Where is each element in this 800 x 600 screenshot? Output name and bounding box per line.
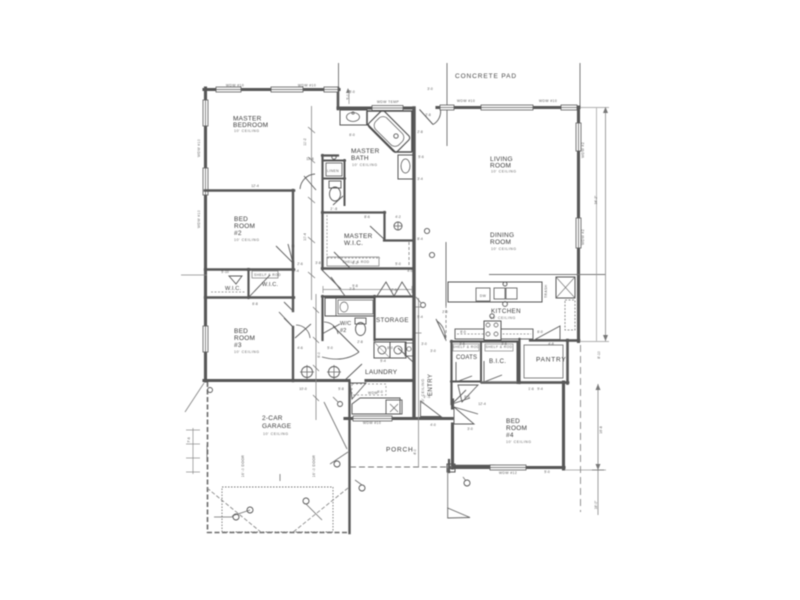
svg-text:WDW TEMP: WDW TEMP: [377, 100, 400, 104]
svg-text:ROOM: ROOM: [506, 425, 527, 432]
svg-text:#3: #3: [234, 342, 242, 349]
svg-text:SHELF & ROD: SHELF & ROD: [485, 345, 512, 349]
svg-text:#4: #4: [506, 432, 514, 439]
svg-text:2-CAR: 2-CAR: [262, 415, 283, 422]
svg-text:WDW #2: WDW #2: [581, 229, 585, 245]
svg-text:MASTER: MASTER: [344, 233, 373, 240]
svg-text:10' CEILING: 10' CEILING: [263, 432, 289, 436]
svg-text:16'-0 DOOR: 16'-0 DOOR: [241, 455, 245, 478]
svg-text:4'-6: 4'-6: [297, 346, 303, 350]
svg-text:8'-0: 8'-0: [460, 330, 466, 334]
svg-text:3'-0: 3'-0: [421, 342, 427, 346]
svg-text:11'-2: 11'-2: [303, 138, 307, 145]
svg-text:8'-0: 8'-0: [464, 395, 470, 399]
svg-text:10' CEILING: 10' CEILING: [491, 170, 517, 174]
svg-text:5'-0: 5'-0: [327, 346, 333, 350]
svg-text:6'-0: 6'-0: [349, 133, 355, 137]
svg-text:GARAGE: GARAGE: [262, 423, 292, 430]
svg-text:2'-8: 2'-8: [330, 207, 337, 211]
svg-text:TRASH: TRASH: [544, 284, 548, 298]
svg-text:10' CEILING: 10' CEILING: [506, 440, 532, 444]
svg-text:5'-6: 5'-6: [418, 155, 424, 159]
svg-text:WDW #12: WDW #12: [499, 471, 517, 475]
svg-text:12'-4: 12'-4: [251, 184, 259, 188]
svg-text:4'-2: 4'-2: [395, 215, 401, 219]
svg-text:BATH: BATH: [351, 155, 369, 162]
svg-text:ROOM: ROOM: [490, 163, 511, 170]
svg-text:WDW #10: WDW #10: [363, 421, 381, 425]
svg-text:WDW #10: WDW #10: [226, 84, 244, 88]
svg-text:COATS: COATS: [456, 355, 477, 361]
svg-text:6'-0: 6'-0: [537, 330, 543, 334]
svg-text:5'-4: 5'-4: [417, 315, 423, 319]
svg-text:6'-8: 6'-8: [252, 302, 258, 306]
svg-text:5'-8: 5'-8: [338, 387, 344, 391]
svg-text:8'-10: 8'-10: [597, 351, 601, 359]
svg-text:WDW #10: WDW #10: [539, 99, 557, 103]
svg-text:3'-6: 3'-6: [459, 342, 465, 346]
svg-text:10' CEILING: 10' CEILING: [234, 238, 260, 242]
svg-text:SHELF & ROD: SHELF & ROD: [452, 345, 479, 349]
svg-text:W.I.C.: W.I.C.: [344, 240, 363, 247]
svg-text:5'-0: 5'-0: [544, 470, 550, 474]
svg-text:2'-8: 2'-8: [349, 287, 355, 291]
svg-text:3'-0: 3'-0: [467, 427, 473, 431]
svg-text:PANTRY: PANTRY: [536, 357, 567, 364]
svg-text:16'-8: 16'-8: [599, 426, 603, 434]
svg-text:ENTRY: ENTRY: [428, 374, 434, 396]
svg-text:1'-6: 1'-6: [528, 387, 534, 391]
svg-text:2'-6: 2'-6: [391, 288, 397, 292]
svg-text:3'-6: 3'-6: [501, 342, 507, 346]
svg-text:PORCH: PORCH: [386, 447, 413, 454]
svg-text:3'-0: 3'-0: [427, 87, 433, 91]
svg-text:BED: BED: [234, 328, 248, 335]
svg-text:CONCRETE PAD: CONCRETE PAD: [455, 73, 517, 80]
svg-text:18'-0": 18'-0": [594, 500, 598, 509]
svg-text:6'-0: 6'-0: [317, 352, 321, 358]
svg-text:W/C: W/C: [340, 321, 351, 327]
svg-text:2'-8: 2'-8: [425, 113, 431, 117]
svg-text:4'-0: 4'-0: [430, 423, 436, 427]
svg-text:#2: #2: [234, 230, 242, 237]
svg-text:WDW #2: WDW #2: [581, 142, 585, 158]
svg-text:#2: #2: [340, 328, 347, 334]
svg-text:7'-6: 7'-6: [187, 437, 191, 443]
svg-text:3'-0: 3'-0: [430, 349, 436, 353]
svg-text:WDW #10: WDW #10: [197, 139, 201, 157]
svg-text:4'-0: 4'-0: [407, 269, 413, 273]
svg-text:9'-0: 9'-0: [377, 390, 383, 394]
svg-text:10' CEILING: 10' CEILING: [234, 129, 260, 133]
svg-text:5'-0: 5'-0: [395, 262, 401, 266]
svg-text:ROOM: ROOM: [234, 223, 255, 230]
svg-text:BEDROOM: BEDROOM: [233, 122, 268, 129]
svg-text:WDW #10: WDW #10: [298, 84, 316, 88]
svg-text:8'-6: 8'-6: [364, 215, 370, 219]
svg-text:LINEN: LINEN: [327, 169, 339, 173]
svg-text:34'-2": 34'-2": [594, 195, 598, 204]
svg-text:6'-2: 6'-2: [352, 261, 358, 265]
svg-text:KITCHEN: KITCHEN: [491, 308, 521, 315]
svg-text:B.I.C.: B.I.C.: [489, 358, 506, 365]
svg-text:LAUNDRY: LAUNDRY: [365, 369, 398, 376]
svg-text:WDW #10: WDW #10: [457, 99, 475, 103]
svg-text:10'-4: 10'-4: [303, 233, 307, 241]
svg-text:8'-0: 8'-0: [387, 346, 393, 350]
svg-text:WDW #10: WDW #10: [197, 210, 201, 228]
svg-text:ROOM: ROOM: [490, 239, 511, 246]
svg-text:2'-6: 2'-6: [297, 262, 303, 266]
svg-text:2'-0: 2'-0: [442, 310, 448, 314]
svg-text:BED: BED: [506, 418, 520, 425]
svg-text:9'-4: 9'-4: [537, 387, 543, 391]
svg-text:2'-4: 2'-4: [293, 269, 299, 273]
svg-text:4'-8: 4'-8: [548, 342, 554, 346]
svg-text:10' CEILING: 10' CEILING: [421, 378, 425, 404]
svg-text:12'-6: 12'-6: [306, 157, 314, 161]
svg-text:10' CEILING: 10' CEILING: [491, 247, 517, 251]
svg-text:3'-4: 3'-4: [417, 177, 423, 181]
svg-text:12'-4: 12'-4: [478, 402, 486, 406]
svg-text:2'-8: 2'-8: [357, 340, 363, 344]
svg-text:MASTER: MASTER: [351, 148, 380, 155]
svg-text:5'-0: 5'-0: [349, 90, 355, 94]
svg-text:DW: DW: [480, 294, 487, 298]
svg-text:W.I.C.: W.I.C.: [262, 282, 278, 288]
svg-text:10' CEILING: 10' CEILING: [234, 350, 260, 354]
svg-text:BED: BED: [234, 216, 248, 223]
svg-text:SHELF & ROD: SHELF & ROD: [254, 273, 281, 277]
svg-text:10' CEILING: 10' CEILING: [352, 163, 378, 167]
svg-text:2'-8: 2'-8: [417, 130, 423, 134]
svg-text:8'-4: 8'-4: [417, 237, 423, 241]
svg-text:ROOM: ROOM: [234, 335, 255, 342]
svg-text:5'-0: 5'-0: [346, 94, 350, 100]
svg-text:DINING: DINING: [490, 232, 514, 239]
svg-text:W.I.C.: W.I.C.: [225, 286, 241, 292]
svg-text:4'-0: 4'-0: [413, 449, 417, 455]
svg-text:10'-0: 10'-0: [299, 387, 307, 391]
svg-text:16'-0 DOOR: 16'-0 DOOR: [312, 455, 316, 478]
svg-text:5'-4: 5'-4: [380, 359, 386, 363]
svg-text:3'-8: 3'-8: [315, 261, 321, 265]
svg-text:5'-10: 5'-10: [221, 270, 229, 274]
svg-text:STORAGE: STORAGE: [376, 317, 409, 324]
